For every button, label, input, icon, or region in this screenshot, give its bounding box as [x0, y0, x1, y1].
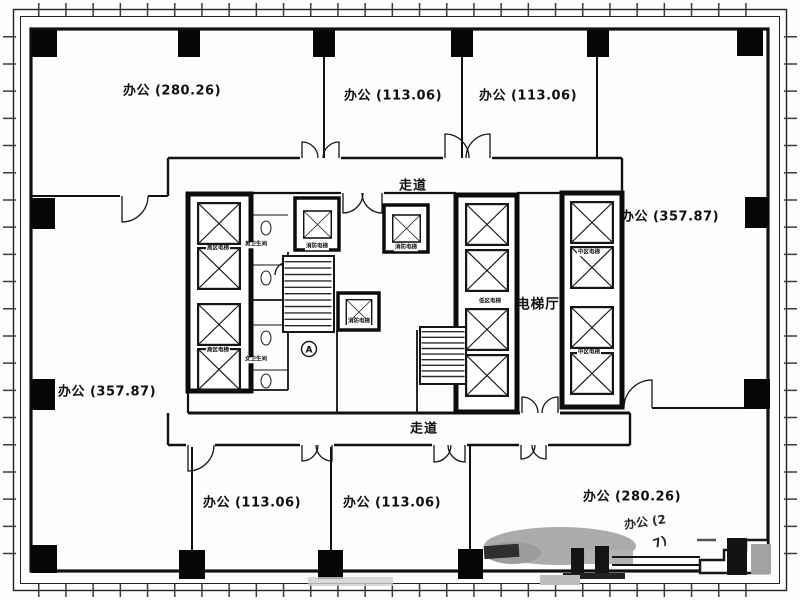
corridor-label-top: 走道 — [399, 180, 427, 193]
elevator-label-mid-zone-2: 中区电梯 — [577, 350, 601, 356]
elevator-bank-mid-zone — [562, 193, 622, 407]
staircase-right — [420, 327, 466, 384]
restroom-label-men: 男卫生间 — [244, 242, 268, 248]
elevator-label-fire-2: 消防电梯 — [394, 245, 418, 251]
axis-bubble-a-letter: A — [306, 346, 313, 356]
restroom-label-women: 女卫生间 — [244, 357, 268, 363]
room-label-office-top-left: 办公 (280.26) — [123, 85, 221, 98]
elevator-label-fire-1: 消防电梯 — [305, 244, 329, 250]
elevator-label-fire-3: 消防电梯 — [347, 319, 371, 325]
room-label-office-bottom-mid: 办公 (113.06) — [343, 497, 441, 510]
elevator-shaft-fire-a — [295, 198, 339, 250]
watermark-logo — [308, 527, 771, 586]
elevator-bank-high-zone — [188, 194, 251, 391]
partition-walls — [31, 57, 745, 551]
elevator-hall-label: 电梯厅 — [516, 298, 560, 312]
room-label-office-bottom-right: 办公 (280.26) — [583, 491, 681, 504]
elevator-label-high-zone-1: 高区电梯 — [206, 246, 230, 252]
elevator-label-mid-zone-1: 中区电梯 — [577, 250, 601, 256]
staircase-left — [283, 256, 334, 332]
room-label-office-top-mid-right: 办公 (113.06) — [479, 90, 577, 103]
floor-plan: A 办公 (280.26) 办公 (113.06) 办公 (113.06) 办公… — [0, 0, 800, 600]
axis-bubble-a: A — [302, 342, 317, 357]
elevator-label-low-zone: 低区电梯 — [478, 299, 502, 305]
corridor-label-bottom: 走道 — [410, 423, 438, 436]
room-label-office-left: 办公 (357.87) — [58, 386, 156, 399]
room-label-office-top-mid-left: 办公 (113.06) — [344, 90, 442, 103]
room-label-office-right: 办公 (357.87) — [621, 211, 719, 224]
elevator-label-high-zone-2: 高区电梯 — [206, 348, 230, 354]
room-label-office-bottom-left: 办公 (113.06) — [203, 497, 301, 510]
